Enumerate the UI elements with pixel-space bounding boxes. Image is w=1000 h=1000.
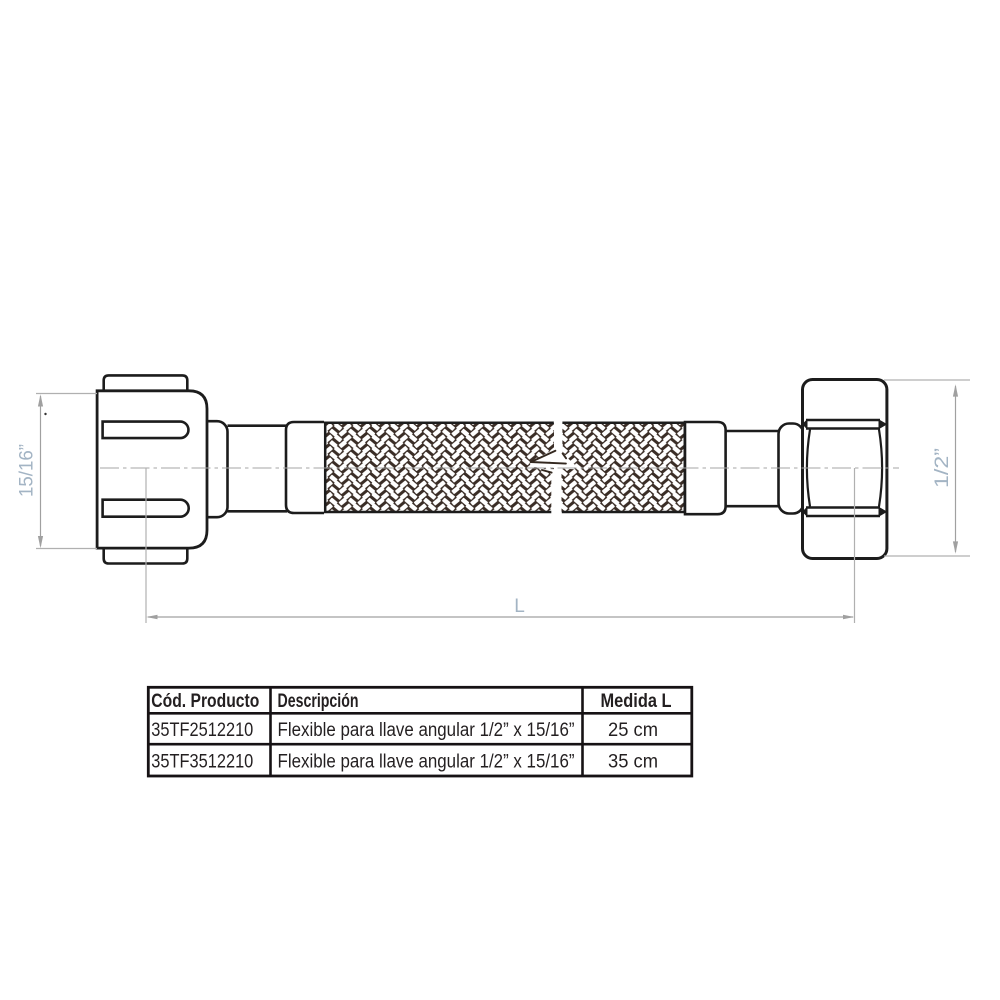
svg-text:Medida L: Medida L <box>601 691 672 712</box>
svg-text:25 cm: 25 cm <box>608 720 658 741</box>
svg-text:Descripción: Descripción <box>278 691 359 712</box>
svg-text:1/2”: 1/2” <box>931 448 953 488</box>
svg-text:15/16”: 15/16” <box>16 444 38 497</box>
svg-text:L: L <box>514 596 525 617</box>
svg-text:35TF3512210: 35TF3512210 <box>151 752 253 773</box>
svg-text:Flexible para llave angular 1/: Flexible para llave angular 1/2” x 15/16… <box>278 752 575 773</box>
svg-text:35TF2512210: 35TF2512210 <box>151 720 253 741</box>
svg-text:Flexible para llave angular 1/: Flexible para llave angular 1/2” x 15/16… <box>278 720 575 741</box>
svg-text:35 cm: 35 cm <box>608 752 658 773</box>
svg-text:Cód. Producto: Cód. Producto <box>151 691 259 712</box>
